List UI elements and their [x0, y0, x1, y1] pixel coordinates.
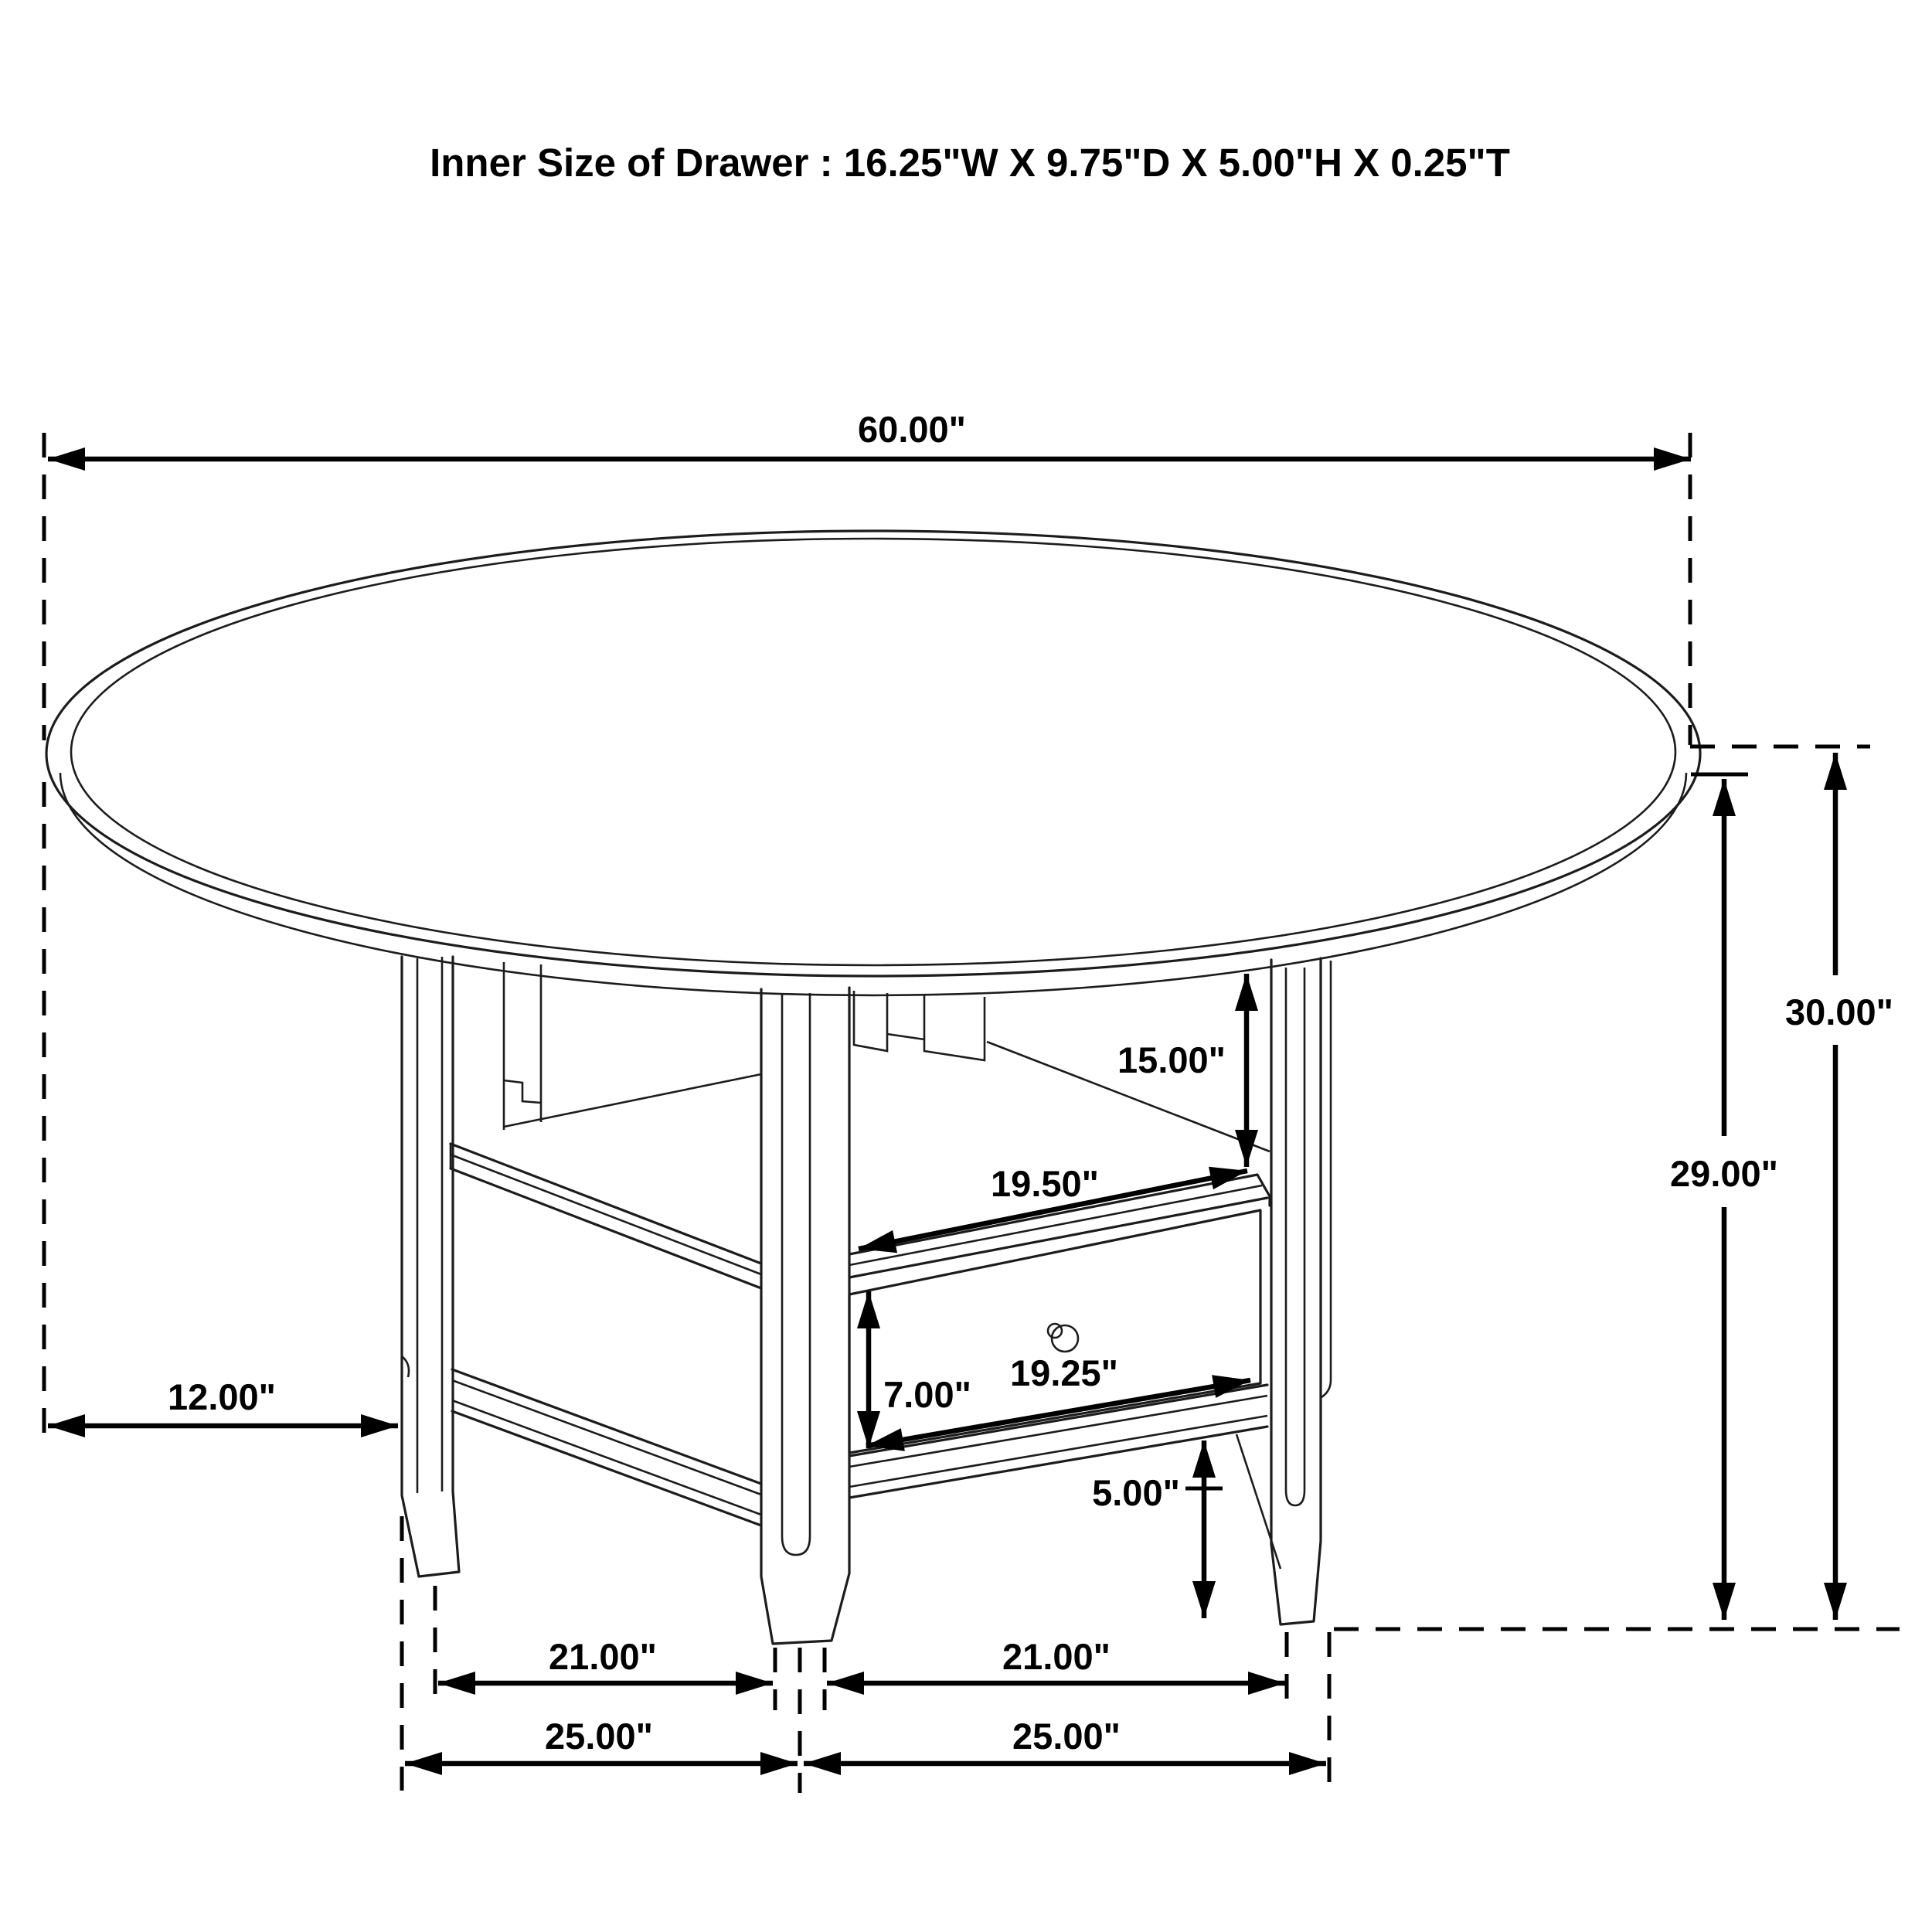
dim-label-overhang: 12.00": [168, 1376, 276, 1417]
center-leg-flute: [782, 993, 810, 1555]
center-leg-outline: [761, 988, 849, 1644]
right-leg-inner-brace: [1236, 1434, 1281, 1569]
tabletop-outer-ellipse: [46, 531, 1700, 976]
left-rail-line2: [452, 1380, 761, 1495]
dim-label-underside-height: 29.00": [1670, 1153, 1778, 1194]
left-leg: [402, 957, 459, 1577]
left-rail-line1: [452, 1369, 761, 1484]
shelf-left-face: [451, 1144, 761, 1288]
dim-label-table-height: 30.00": [1785, 992, 1893, 1032]
right-leg-outline: [1271, 958, 1321, 1624]
dim-label-foot-height: 5.00": [1092, 1472, 1180, 1513]
dimension-annotations: 60.00" 30.00" 29.00" 15.00" 19.50" 7.00"…: [48, 141, 1893, 1764]
back-left-leg: [504, 962, 761, 1130]
construction-lines: [44, 433, 1900, 1793]
tabletop-edge-thickness-arc: [60, 773, 1686, 995]
rails-left-face: [452, 1369, 761, 1526]
left-leg-outline: [402, 957, 459, 1577]
back-left-leg-notch: [504, 1080, 541, 1103]
shelf-left-bottom-edge: [451, 1168, 761, 1288]
dim-label-leg-outer-left: 25.00": [545, 1716, 653, 1757]
right-leg: [1236, 958, 1331, 1624]
dim-label-shelf-width: 19.50": [991, 1163, 1099, 1204]
table-drawing: [46, 531, 1700, 1644]
back-post-block1: [854, 991, 887, 1051]
right-leg-outer-side: [1321, 961, 1331, 1397]
right-leg-flute: [1286, 968, 1304, 1505]
back-post-connector: [887, 1034, 924, 1039]
dim-label-drawer-width: 19.25": [1010, 1352, 1118, 1393]
page-title: Inner Size of Drawer : 16.25"W X 9.75"D …: [430, 141, 1510, 185]
shelf-left-mid-edge: [451, 1155, 761, 1274]
dim-label-shelf-opening: 15.00": [1117, 1039, 1226, 1080]
diagram-canvas: 60.00" 30.00" 29.00" 15.00" 19.50" 7.00"…: [0, 0, 1932, 1932]
back-post-block2: [924, 994, 985, 1060]
dim-label-leg-outer-right: 25.00": [1012, 1716, 1121, 1757]
dim-label-leg-inner-left: 21.00": [549, 1636, 657, 1677]
center-leg: [761, 988, 849, 1644]
tabletop-rim-ellipse: [71, 539, 1675, 965]
drawer: [849, 1210, 1260, 1453]
back-rail-left-diagonal: [504, 1074, 761, 1127]
dim-label-table-diameter: 60.00": [858, 409, 966, 450]
left-rail-line4: [452, 1411, 761, 1526]
dim-label-leg-inner-right: 21.00": [1002, 1636, 1111, 1677]
furniture-dimension-diagram: 60.00" 30.00" 29.00" 15.00" 19.50" 7.00"…: [0, 0, 1932, 1932]
shelf-left-top-edge: [451, 1144, 761, 1264]
dim-label-drawer-height: 7.00": [883, 1374, 971, 1415]
left-rail-line3: [452, 1400, 761, 1515]
